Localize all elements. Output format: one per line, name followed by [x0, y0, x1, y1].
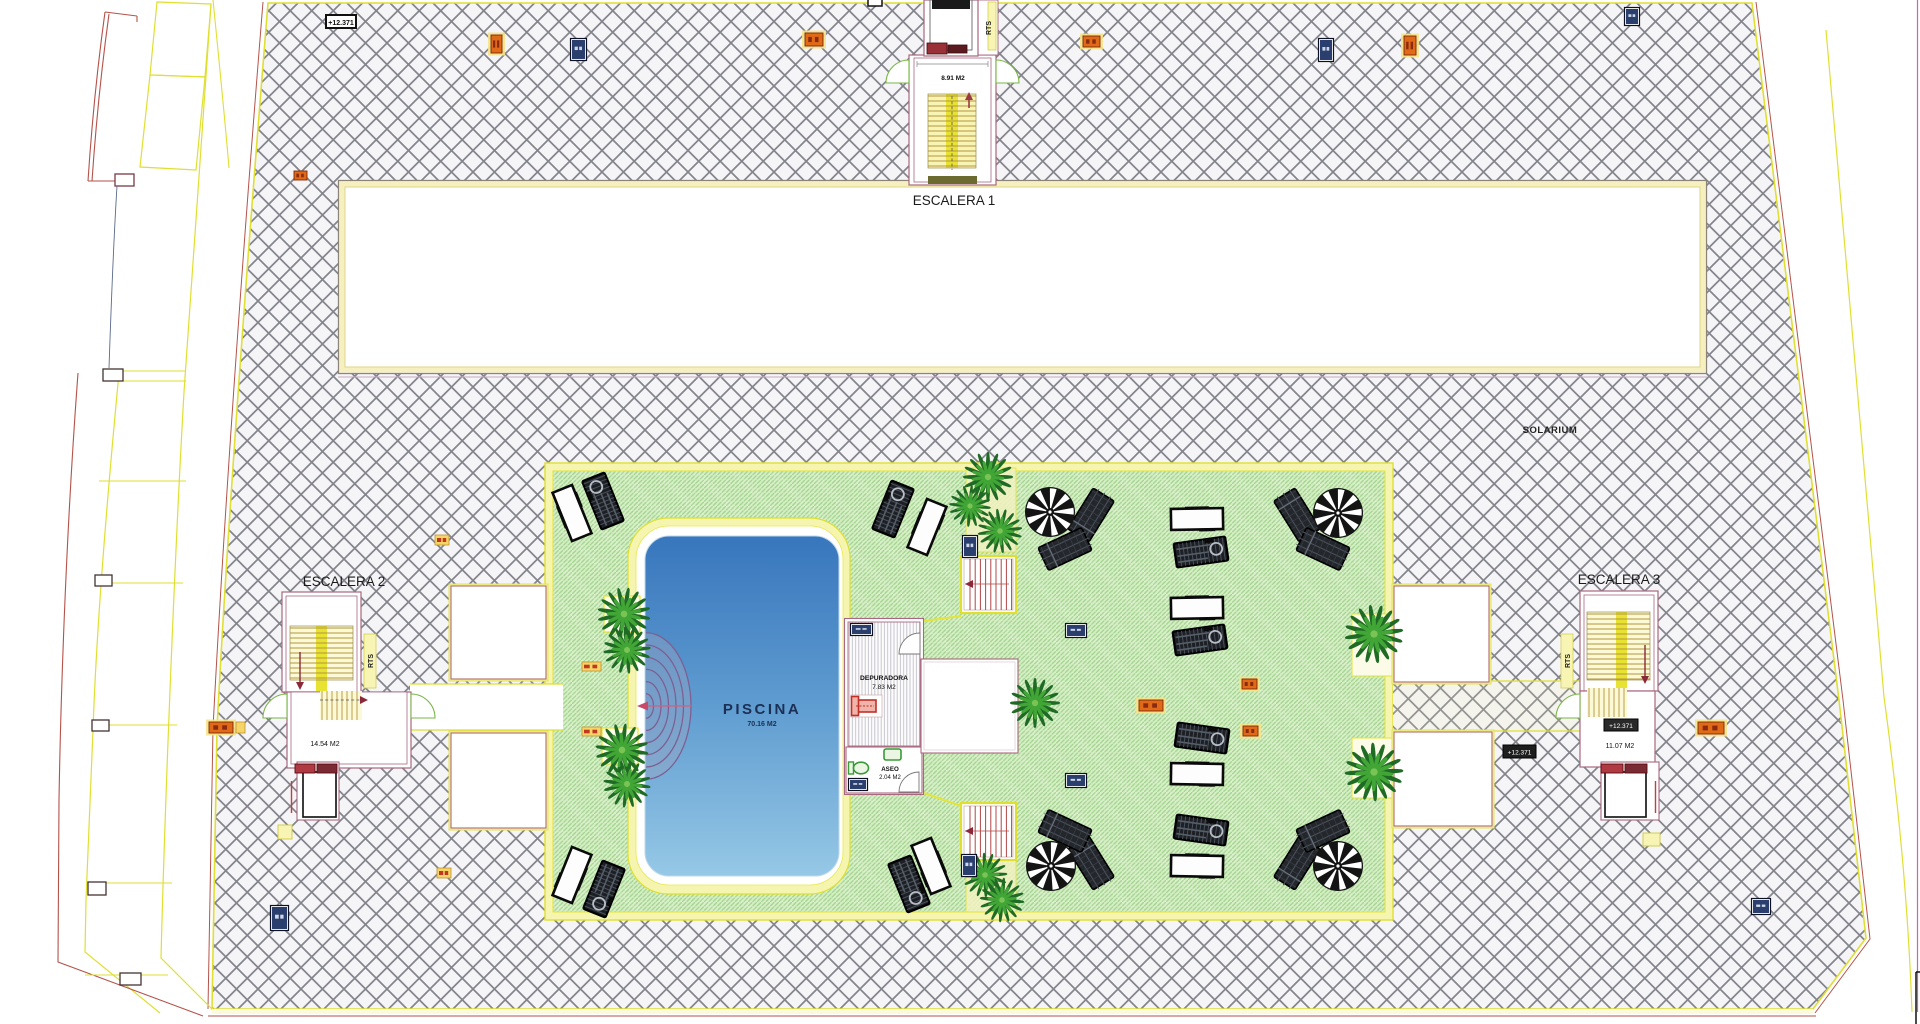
- svg-text:DEPURADORA: DEPURADORA: [860, 675, 908, 682]
- svg-text:RTS: RTS: [1565, 654, 1572, 668]
- svg-text:+12.371: +12.371: [328, 20, 354, 27]
- svg-text:7.83 M2: 7.83 M2: [872, 684, 896, 691]
- svg-text:ESCALERA 1: ESCALERA 1: [913, 193, 996, 208]
- svg-text:+12.371: +12.371: [1609, 723, 1633, 730]
- svg-text:RTS: RTS: [986, 21, 993, 35]
- svg-text:PISCINA: PISCINA: [723, 701, 801, 718]
- svg-text:ESCALERA 3: ESCALERA 3: [1578, 572, 1661, 587]
- svg-text:SOLARIUM: SOLARIUM: [1523, 425, 1578, 436]
- svg-text:14.54 M2: 14.54 M2: [310, 741, 339, 748]
- svg-text:ASEO: ASEO: [881, 766, 899, 773]
- svg-text:+12.371: +12.371: [1508, 750, 1532, 757]
- svg-text:11.07 M2: 11.07 M2: [1606, 743, 1635, 750]
- svg-text:8.91 M2: 8.91 M2: [941, 75, 965, 82]
- svg-text:2.04 M2: 2.04 M2: [879, 775, 901, 781]
- svg-text:70.16 M2: 70.16 M2: [747, 721, 776, 728]
- svg-text:ESCALERA 2: ESCALERA 2: [303, 574, 386, 589]
- svg-text:RTS: RTS: [368, 654, 375, 668]
